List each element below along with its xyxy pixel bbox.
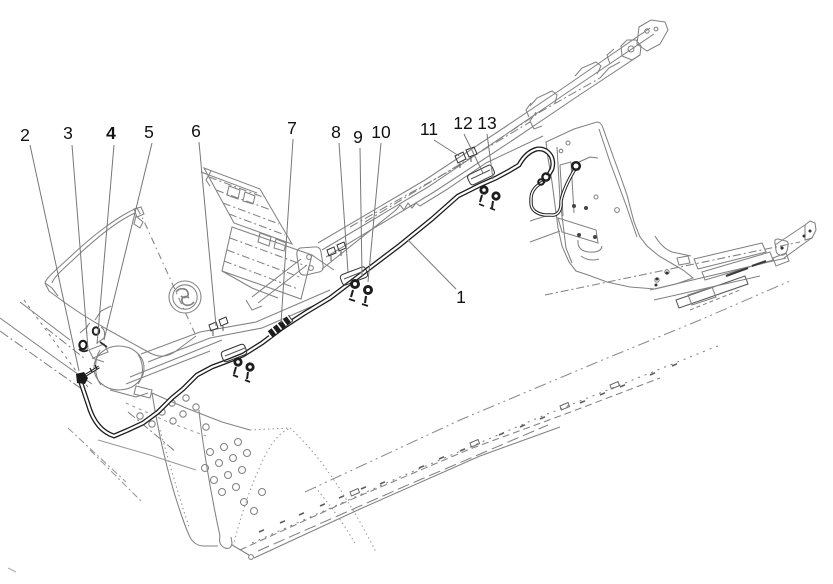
svg-text:4: 4	[106, 123, 116, 143]
svg-text:13: 13	[477, 113, 496, 133]
svg-text:9: 9	[353, 127, 363, 147]
svg-text:3: 3	[63, 123, 73, 143]
svg-text:11: 11	[420, 119, 438, 139]
svg-text:7: 7	[287, 118, 297, 138]
svg-text:8: 8	[331, 122, 341, 142]
svg-text:5: 5	[144, 122, 154, 142]
svg-text:10: 10	[371, 122, 391, 142]
svg-text:12: 12	[453, 113, 472, 133]
svg-text:6: 6	[191, 121, 201, 141]
svg-text:2: 2	[20, 125, 30, 145]
svg-text:1: 1	[456, 287, 466, 307]
